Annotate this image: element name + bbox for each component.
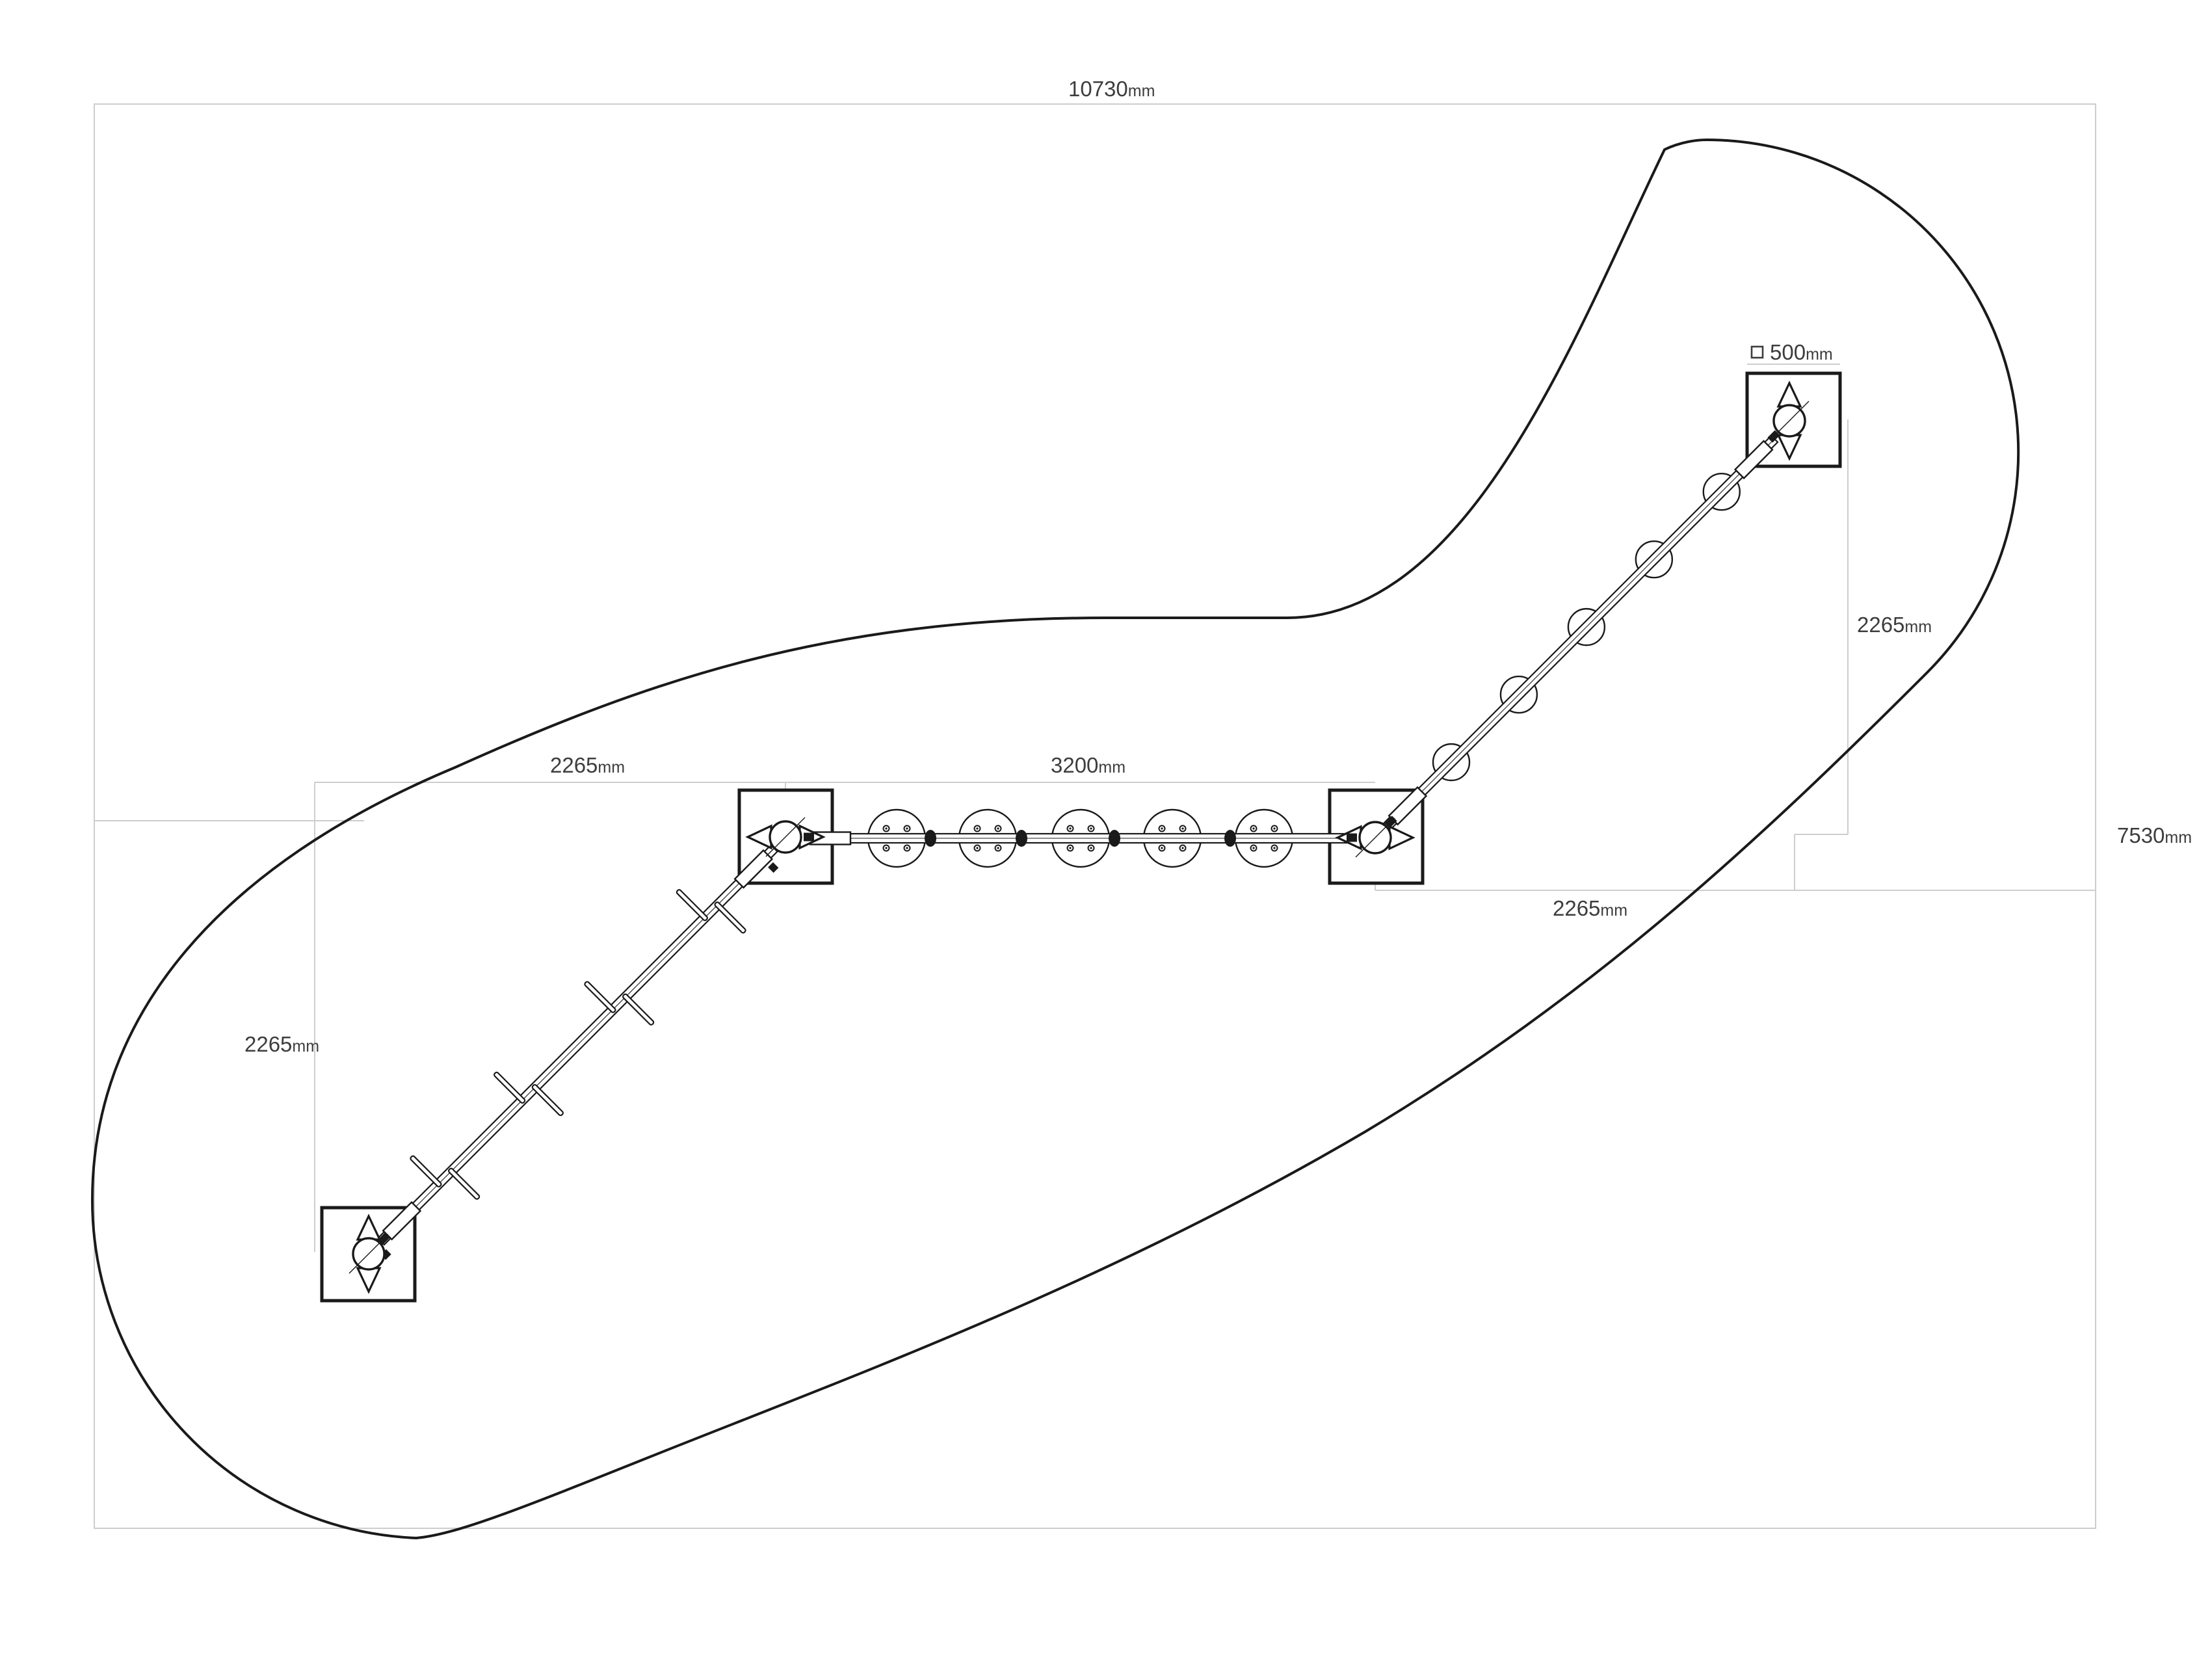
dim-mid-unit: mm (1098, 758, 1126, 776)
beam-rung (714, 901, 746, 933)
rail-joint (1224, 830, 1236, 847)
square-symbol-icon (1752, 347, 1763, 358)
pod-grip-dot-center (885, 847, 887, 849)
beam-rung (622, 994, 654, 1026)
platform-size-value: 500 (1770, 340, 1806, 364)
pod-grip-dot-center (1090, 847, 1092, 849)
pod-grip-dot-center (1181, 827, 1183, 829)
beam-rung (676, 889, 708, 921)
overall-height-unit: mm (2165, 829, 2192, 847)
pod-grip-dot-center (1069, 847, 1071, 849)
dim-sw-label: 2265mm (550, 753, 625, 777)
dim-far-left-value: 2265 (244, 1032, 292, 1056)
drawing-canvas: 10730mm 500mm 2265mm 7530mm 2265mm 3200m… (0, 0, 2212, 1659)
pod-grip-dot-center (1161, 827, 1163, 829)
mid-pod-beam (805, 832, 1356, 845)
pod-grip-dot-center (1252, 847, 1254, 849)
dim-sw-value: 2265 (550, 753, 598, 777)
dim-ne-value: 2265 (1553, 896, 1600, 920)
rail-joint (1109, 830, 1120, 847)
dim-mid-value: 3200 (1051, 753, 1098, 777)
anchor-coupling (1347, 834, 1357, 842)
beam-rung (532, 1084, 564, 1116)
pod-grip-dot-center (976, 847, 978, 849)
dim-far-left-unit: mm (292, 1037, 319, 1055)
ne-traverse-beam (1382, 434, 1779, 831)
beam-rung (410, 1155, 441, 1187)
pod-grip-dot-center (1161, 847, 1163, 849)
dim-mid-label: 3200mm (1051, 753, 1126, 777)
pod-grip-dot-center (1273, 847, 1275, 849)
pod-grip-dot-center (906, 827, 908, 829)
rail-joint (1016, 830, 1027, 847)
dim-far-left-label: 2265mm (244, 1032, 319, 1056)
pod-grip-dot-center (885, 827, 887, 829)
dim-right-label: 2265mm (1857, 613, 1932, 637)
pod-grip-dot-center (906, 847, 908, 849)
plan-drawing: 10730mm 500mm 2265mm 7530mm 2265mm 3200m… (0, 0, 2212, 1659)
overall-height-label: 7530mm (2117, 823, 2192, 847)
pod-grip-dot-center (1273, 827, 1275, 829)
traverse-rail-midline (1387, 439, 1774, 827)
platform-size-unit: mm (1806, 345, 1833, 364)
dim-right-value: 2265 (1857, 613, 1904, 637)
dim-ne-unit: mm (1600, 901, 1627, 920)
dim-right-unit: mm (1904, 618, 1932, 636)
pod-grip-dot-center (1252, 827, 1254, 829)
overall-height-value: 7530 (2117, 823, 2165, 847)
rail-joint (925, 830, 936, 847)
pod-grip-dot-center (997, 827, 999, 829)
beam-rung (584, 981, 616, 1013)
dimension-labels: 10730mm 500mm 2265mm 7530mm 2265mm 3200m… (244, 77, 2192, 1056)
pod-grip-dot-center (1069, 827, 1071, 829)
dim-sw-unit: mm (598, 758, 625, 776)
overall-width-value: 10730 (1068, 77, 1128, 101)
overall-width-label: 10730mm (1068, 77, 1155, 101)
pod-grip-dot-center (976, 827, 978, 829)
beam-rung (448, 1168, 480, 1200)
dim-ne-label: 2265mm (1553, 896, 1627, 920)
platform-size-label: 500mm (1770, 340, 1833, 364)
pod-grip-dot-center (997, 847, 999, 849)
overall-width-unit: mm (1128, 82, 1155, 100)
sw-balance-beam (354, 821, 801, 1269)
pod-grip-dot-center (1090, 827, 1092, 829)
beam-rung (494, 1072, 525, 1104)
pod-grip-dot-center (1181, 847, 1183, 849)
anchor-coupling (804, 833, 814, 842)
